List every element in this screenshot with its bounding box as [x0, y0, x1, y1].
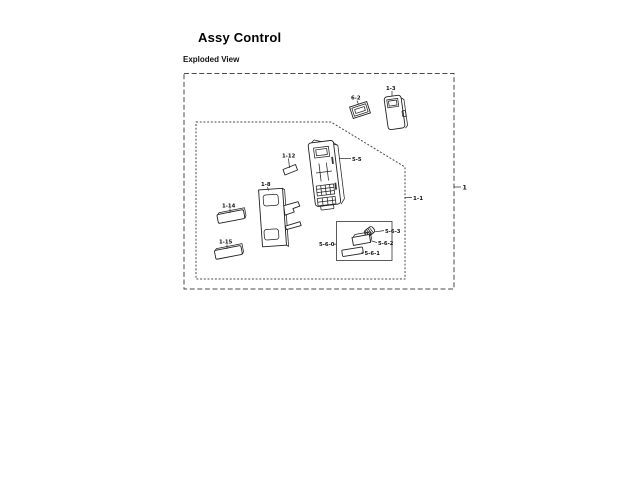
part-label-key-bar-top: 1-14 — [222, 204, 236, 210]
part-label-key-chip: 1-12 — [282, 154, 296, 160]
exploded-view-diagram: 1 1-1 1-3 — [0, 0, 640, 480]
part-control-panel: 5-5 — [308, 137, 362, 211]
part-key-bar-top: 1-14 — [217, 204, 247, 224]
part-label-control-panel: 5-5 — [352, 157, 362, 163]
part-label-encoder-knob: 5-6-3 — [385, 229, 401, 235]
part-pba-main: 1-8 — [259, 182, 303, 248]
assembly-callout: 1 — [463, 185, 467, 192]
part-label-pba-main: 1-8 — [261, 182, 271, 188]
part-holder-support: 1-3 — [384, 86, 408, 131]
part-label-encoder-plate: 5-6-1 — [365, 251, 381, 257]
part-membrane-window: 6-2 — [350, 96, 371, 119]
part-encoder-plate: 5-6-1 — [342, 247, 381, 257]
document-page: Assy Control Exploded View 1 1-1 1-3 — [0, 0, 640, 480]
part-key-chip: 1-12 — [282, 154, 298, 176]
part-key-bar-bottom: 1-15 — [214, 240, 244, 260]
panel-assembly-callout: 1-1 — [413, 196, 423, 202]
part-label-membrane-window: 6-2 — [351, 96, 361, 102]
part-label-encoder-body: 5-6-2 — [378, 241, 394, 247]
part-label-encoder-group: 5-6-0 — [319, 242, 335, 248]
part-label-holder-support: 1-3 — [386, 86, 396, 92]
part-label-key-bar-bottom: 1-15 — [219, 240, 233, 246]
